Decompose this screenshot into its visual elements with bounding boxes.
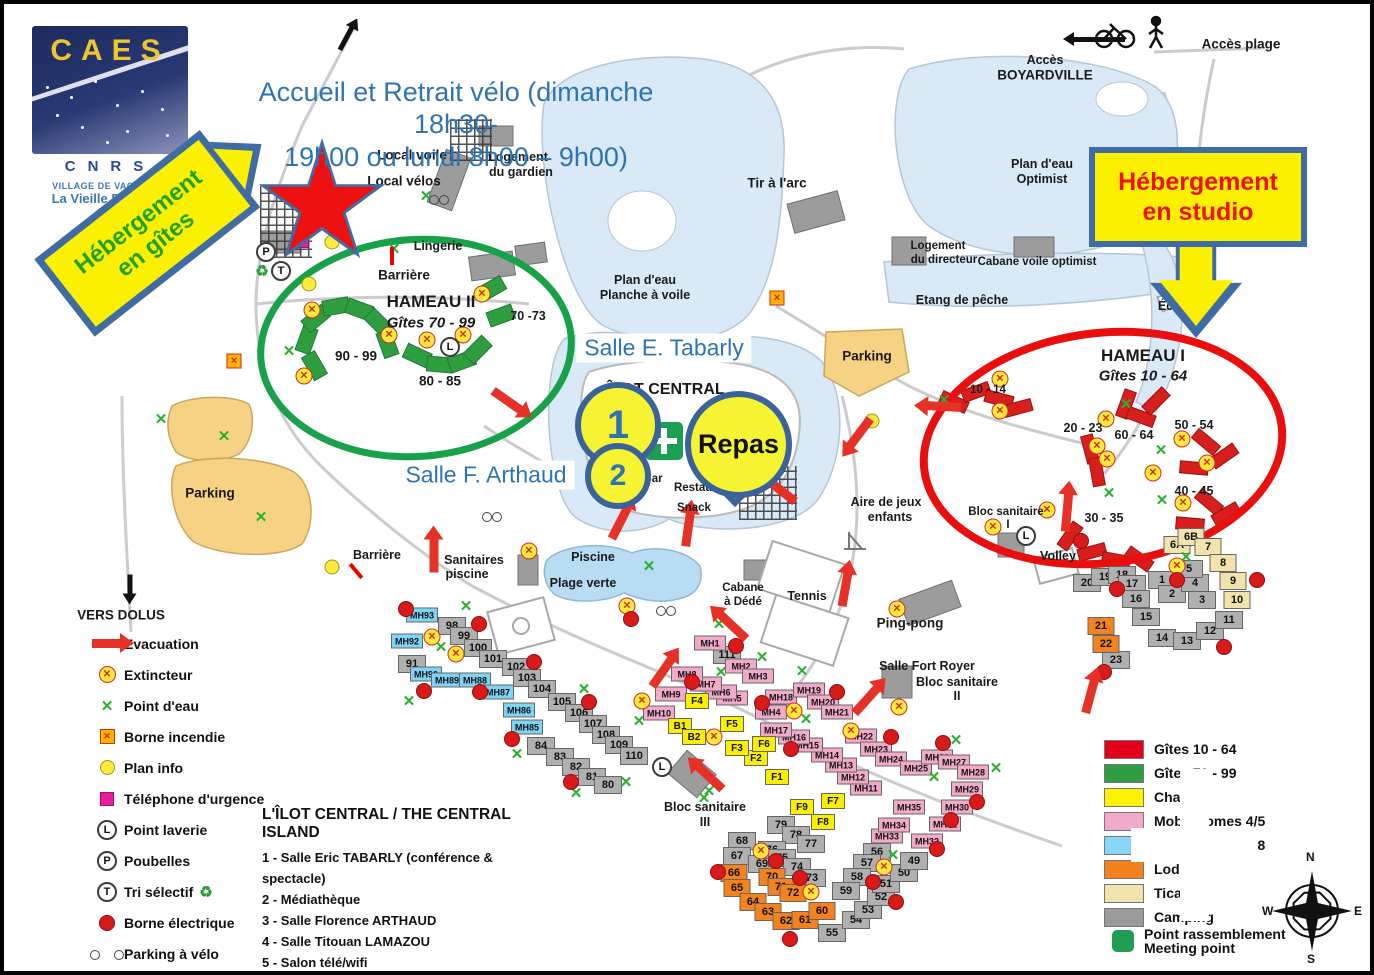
unit-14: 14: [1148, 629, 1176, 647]
electric-terminal-icon: [929, 841, 945, 857]
room-2-badge: 2: [585, 443, 651, 509]
logo-caes-text: CAES: [32, 26, 188, 68]
unit-MH1: MH1: [694, 636, 726, 651]
legend-item-tel: Téléphone d'urgence: [90, 783, 264, 814]
unit-B2: B2: [682, 729, 706, 745]
unit-F3: F3: [725, 740, 749, 756]
laundry-icon: L: [1016, 526, 1036, 546]
bike-parking-icon: [429, 194, 449, 204]
electric-terminal-icon: [943, 812, 959, 828]
legend-color-swatch: [1104, 788, 1144, 807]
electric-terminal-icon: [865, 874, 881, 890]
extinguisher-icon: ✕: [891, 699, 908, 716]
legend-item-elec: Borne électrique: [90, 907, 264, 938]
water-point-icon: ✕: [435, 638, 448, 656]
logo-night-sky: CAES: [32, 26, 188, 154]
unit-MH3: MH3: [742, 669, 774, 684]
recycle-icon: ♻: [199, 883, 212, 901]
barrier-mark: [390, 247, 394, 265]
electric-terminal-icon: [684, 674, 700, 690]
legend-item-info: Plan info: [90, 752, 264, 783]
trash-icon: P: [97, 851, 117, 871]
legend-icon-cell: [90, 949, 124, 959]
evacuation-arrow-legend: [92, 639, 122, 648]
central-island-legend-item: 2 - Médiathèque: [262, 889, 552, 910]
unit-F9: F9: [790, 799, 814, 815]
water-point-icon: ✕: [403, 692, 416, 710]
hebergement-studio-banner: Hébergement en studio: [1089, 147, 1307, 247]
extinguisher-icon: ✕: [753, 843, 770, 860]
compass-e: E: [1354, 904, 1362, 918]
fire-hydrant-icon: ✕: [770, 291, 785, 306]
info-map-icon: [302, 277, 317, 292]
recycle-sort-icon: T: [97, 882, 117, 902]
unit-MH21: MH21: [821, 705, 853, 720]
legend-icon-cell: [90, 760, 124, 775]
water-point-icon: ✕: [283, 342, 296, 360]
fire-hydrant-icon: ✕: [100, 729, 115, 744]
accueil-annotation-line2: 19h00 ou lundi 8h00 – 9h00): [226, 141, 686, 173]
extinguisher-icon: ✕: [992, 403, 1009, 420]
legend-icon-cell: ✕: [90, 729, 124, 744]
extinguisher-icon: ✕: [1099, 451, 1116, 468]
direction-arrow: [128, 575, 133, 595]
water-point-icon: ✕: [255, 508, 268, 526]
water-point-icon: ✕: [756, 648, 769, 666]
water-point-icon: ✕: [620, 773, 633, 791]
water-point-icon: ✕: [643, 557, 656, 575]
unit-49: 49: [900, 852, 928, 870]
fire-hydrant-icon: ✕: [227, 354, 242, 369]
legend-color-swatch: [1104, 860, 1144, 879]
unit-F5: F5: [720, 716, 744, 732]
electric-terminal-icon: [472, 684, 488, 700]
site-map: 9899100101102103104105106107108109110911…: [0, 0, 1374, 975]
extinguisher-icon: ✕: [1145, 465, 1162, 482]
electric-terminal-icon: [623, 611, 639, 627]
repas-balloon: Repas: [685, 391, 792, 498]
electric-terminal-icon: [754, 695, 770, 711]
water-point-icon: ✕: [796, 662, 809, 680]
electric-terminal-icon: [563, 774, 579, 790]
water-point-icon: ✕: [1180, 548, 1193, 566]
unit-80: 80: [594, 776, 622, 794]
extinguisher-icon: ✕: [634, 693, 651, 710]
water-point-icon: ✕: [633, 712, 646, 730]
bike-parking-icon: [97, 949, 117, 959]
unit-F8: F8: [811, 814, 835, 830]
central-island-legend-item: 5 - Salon télé/wifi: [262, 952, 552, 973]
water-point-icon: ✕: [101, 697, 114, 715]
legend-label: Gîtes 10 - 64: [1154, 742, 1237, 756]
electric-terminal-icon: [969, 794, 985, 810]
unit-21: 21: [1088, 617, 1115, 635]
water-point-icon: ✕: [1156, 491, 1169, 509]
electric-terminal-icon: [710, 864, 726, 880]
electric-terminal-icon: [935, 735, 951, 751]
extinguisher-icon: ✕: [304, 302, 321, 319]
accommodation-legend: Gîtes 10 - 64Gîtes 70 - 99ChaletsMobil-H…: [1104, 737, 1286, 953]
central-island-legend-item: 1 - Salle Eric TABARLY (conférence & spe…: [262, 847, 552, 889]
extinguisher-icon: ✕: [448, 646, 465, 663]
legend-label: Téléphone d'urgence: [124, 791, 264, 807]
legend-color-swatch: [1104, 740, 1144, 759]
extinguisher-icon: ✕: [381, 327, 398, 344]
electric-terminal-icon: [883, 729, 899, 745]
electric-terminal-icon: [1169, 572, 1185, 588]
water-point-icon: ✕: [887, 846, 900, 864]
electric-terminal-icon: [888, 894, 904, 910]
water-point-icon: ✕: [928, 768, 941, 786]
legend-color-swatch: [1104, 908, 1144, 927]
extinguisher-icon: ✕: [419, 332, 436, 349]
legend-label: Poubelles: [124, 853, 190, 869]
studio-banner-line1: Hébergement: [1118, 167, 1278, 197]
central-island-legend: L'ÎLOT CENTRAL / THE CENTRAL ISLAND 1 - …: [262, 806, 552, 975]
central-island-legend-item: 4 - Salle Titouan LAMAZOU: [262, 931, 552, 952]
extinguisher-icon: ✕: [992, 371, 1009, 388]
salle-arthaud-callout: Salle F. Arthaud: [397, 461, 574, 490]
extinguisher-icon: ✕: [1199, 455, 1216, 472]
water-point-icon: ✕: [1103, 484, 1116, 502]
unit-F7: F7: [821, 793, 845, 809]
legend-label: Evacuation: [124, 636, 199, 652]
electric-terminal-icon: [829, 684, 845, 700]
water-point-icon: ✕: [218, 427, 231, 445]
compass-w: W: [1262, 904, 1273, 918]
extinguisher-icon: ✕: [889, 601, 906, 618]
water-point-icon: ✕: [950, 731, 963, 749]
unit-F1: F1: [765, 769, 789, 785]
direction-arrow: [1073, 37, 1125, 42]
legend-label: Point d'eau: [124, 698, 199, 714]
legend-icon-cell: L: [90, 820, 124, 840]
studio-banner-line2: en studio: [1142, 197, 1253, 227]
legend-icon-cell: [90, 792, 124, 806]
compass-n: N: [1306, 850, 1315, 864]
info-map-icon: [100, 760, 115, 775]
info-map-icon: [325, 560, 340, 575]
central-island-legend-item: 3 - Salle Florence ARTHAUD: [262, 910, 552, 931]
electric-terminal-icon: [1109, 581, 1125, 597]
salle-tabarly-callout: Salle E. Tabarly: [576, 334, 751, 363]
water-point-icon: ✕: [1120, 395, 1133, 413]
legend-label: Extincteur: [124, 667, 192, 683]
electric-terminal-icon: [1073, 533, 1089, 549]
unit-22: 22: [1093, 635, 1120, 653]
meeting-point-icon: [1112, 930, 1134, 952]
unit-3: 3: [1188, 591, 1216, 609]
evacuation-arrow: [927, 401, 961, 412]
central-island-legend-title: L'ÎLOT CENTRAL / THE CENTRAL ISLAND: [262, 806, 552, 842]
legend-label: Borne électrique: [124, 915, 234, 931]
legend-icon-cell: [90, 639, 124, 648]
accommodation-legend-item: Gîtes 10 - 64: [1104, 737, 1286, 761]
extinguisher-icon: ✕: [985, 519, 1002, 536]
laundry-icon: L: [440, 337, 460, 357]
legend-color-swatch: [1104, 884, 1144, 903]
extinguisher-icon: ✕: [706, 729, 723, 746]
electric-terminal-icon: [768, 853, 784, 869]
unit-MH86: MH86: [503, 703, 535, 718]
electric-terminal-icon: [526, 654, 542, 670]
legend-color-swatch: [1104, 764, 1144, 783]
unit-110: 110: [620, 747, 648, 765]
extinguisher-icon: ✕: [1098, 411, 1115, 428]
compass-s: S: [1307, 952, 1315, 966]
electric-terminal-icon: [504, 731, 520, 747]
legend-icon-cell: P: [90, 851, 124, 871]
legend-item-bike: Parking à vélo: [90, 938, 264, 969]
accueil-annotation-line1: Accueil et Retrait vélo (dimanche 18h30-: [226, 76, 686, 141]
legend-icon-cell: ✕: [90, 697, 124, 715]
unit-67: 67: [723, 847, 751, 865]
unit-59: 59: [832, 882, 860, 900]
accommodation-legend-item: Point rassemblementMeeting point: [1104, 929, 1286, 953]
symbols-legend: Evacuation✕Extincteur✕Point d'eau✕Borne …: [90, 628, 264, 969]
water-point-icon: ✕: [511, 745, 524, 763]
bike-parking-icon: [656, 605, 676, 615]
legend-item-tri: TTri sélectif♻: [90, 876, 264, 907]
legend-item-poub: PPoubelles: [90, 845, 264, 876]
electric-terminal-icon: [782, 931, 798, 947]
legend-label: Borne incendie: [124, 729, 225, 745]
electric-terminal-icon: [783, 741, 799, 757]
unit-15: 15: [1132, 608, 1160, 626]
water-point-icon: ✕: [990, 759, 1003, 777]
unit-60: 60: [809, 902, 836, 920]
recycle-icon: ♻: [255, 262, 268, 280]
extinguisher-icon: ✕: [1175, 495, 1192, 512]
water-point-icon: ✕: [460, 597, 473, 615]
unit-MH34: MH34: [878, 818, 910, 833]
extinguisher-icon: ✕: [296, 368, 313, 385]
unit-8: 8: [1210, 554, 1237, 572]
beach-access-icons: [1096, 17, 1163, 48]
water-point-icon: ✕: [1155, 441, 1168, 459]
legend-icon-cell: [90, 915, 124, 931]
recycle-sort-icon: T: [271, 261, 291, 281]
bike-parking-icon: [482, 511, 502, 521]
extinguisher-icon: ✕: [474, 286, 491, 303]
unit-11: 11: [1215, 611, 1243, 629]
extinguisher-icon: ✕: [1174, 431, 1191, 448]
electric-terminal-icon: [416, 683, 432, 699]
compass-rose: N E S W: [1262, 854, 1362, 964]
legend-item-eau: ✕Point d'eau: [90, 690, 264, 721]
legend-item-evac: Evacuation: [90, 628, 264, 659]
laundry-icon: L: [97, 820, 117, 840]
unit-77: 77: [797, 835, 825, 853]
legend-label: Plan info: [124, 760, 183, 776]
unit-9: 9: [1220, 572, 1247, 590]
electric-terminal-icon: [99, 915, 115, 931]
emergency-phone-icon: [100, 792, 114, 806]
electric-terminal-icon: [1216, 639, 1232, 655]
laundry-icon: L: [652, 757, 672, 777]
water-point-icon: ✕: [155, 410, 168, 428]
electric-terminal-icon: [1249, 572, 1265, 588]
legend-label: Tri sélectif: [124, 884, 193, 900]
electric-terminal-icon: [792, 870, 808, 886]
extinguisher-icon: ✕: [803, 884, 820, 901]
legend-label: Parking à vélo: [124, 946, 219, 962]
legend-item-lav: LPoint laverie: [90, 814, 264, 845]
electric-terminal-icon: [471, 616, 487, 632]
unit-MH92: MH92: [391, 634, 423, 649]
electric-terminal-icon: [398, 601, 414, 617]
unit-MH28: MH28: [957, 765, 989, 780]
legend-label: Point laverie: [124, 822, 207, 838]
water-point-icon: ✕: [800, 710, 813, 728]
water-point-icon: ✕: [715, 663, 728, 681]
legend-item-inc: ✕Borne incendie: [90, 721, 264, 752]
unit-F6: F6: [752, 736, 776, 752]
extinguisher-icon: ✕: [521, 543, 538, 560]
extinguisher-icon: ✕: [1039, 502, 1056, 519]
legend-item-ext: ✕Extincteur: [90, 659, 264, 690]
legend-label: Mobil-Homes 4/5: [1154, 814, 1265, 828]
extinguisher-icon: ✕: [99, 666, 116, 683]
unit-MH35: MH35: [893, 800, 925, 815]
unit-F4: F4: [685, 693, 709, 709]
evacuation-arrow: [430, 539, 439, 573]
legend-icon-cell: ✕: [90, 666, 124, 683]
legend-icon-cell: T: [90, 882, 124, 902]
unit-16: 16: [1122, 590, 1150, 608]
unit-10: 10: [1224, 591, 1251, 609]
extinguisher-icon: ✕: [843, 723, 860, 740]
electric-terminal-icon: [581, 694, 597, 710]
trash-icon: P: [256, 242, 276, 262]
unit-MH9: MH9: [655, 687, 687, 702]
accueil-annotation: Accueil et Retrait vélo (dimanche 18h30-…: [226, 76, 686, 173]
